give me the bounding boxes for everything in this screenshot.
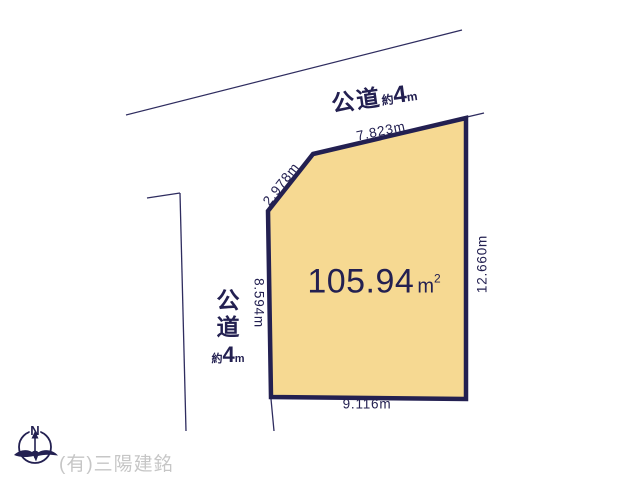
plot-area-label: 105.94 m 2: [307, 263, 440, 302]
plot-area-unit: m: [417, 276, 434, 299]
road-left-label: 公 道 約4m: [204, 287, 252, 370]
extension-line-bottom-left: [271, 399, 274, 431]
road-top-name: 公道: [330, 84, 383, 117]
road-left-width-row: 約4m: [204, 344, 252, 370]
road-left-approx: 約: [211, 353, 222, 365]
plot-area-unit-sup: 2: [434, 272, 441, 286]
road-left-char1: 公: [204, 287, 252, 314]
plot-area-value: 105.94: [307, 263, 414, 302]
dimension-left: 8.594m: [252, 278, 267, 328]
road-left-char2: 道: [204, 314, 252, 341]
road-left-unit: m: [235, 353, 245, 365]
extension-line-top-right: [467, 113, 484, 117]
plot-polygon: [268, 118, 466, 399]
diagram-geometry: [0, 0, 640, 480]
dimension-right: 12.660m: [475, 235, 490, 293]
compass-north-icon: N: [12, 422, 62, 472]
road-left-corner-line: [147, 193, 180, 198]
road-left-line: [180, 193, 186, 431]
land-plot-diagram: 公道約4m 7.823m 2.978m 8.594m 12.660m 9.116…: [0, 0, 640, 480]
road-left-width: 4: [222, 342, 234, 367]
road-top-unit: m: [406, 89, 419, 104]
dimension-bottom: 9.116m: [343, 397, 392, 412]
company-name: (有)三陽建銘: [59, 449, 174, 476]
